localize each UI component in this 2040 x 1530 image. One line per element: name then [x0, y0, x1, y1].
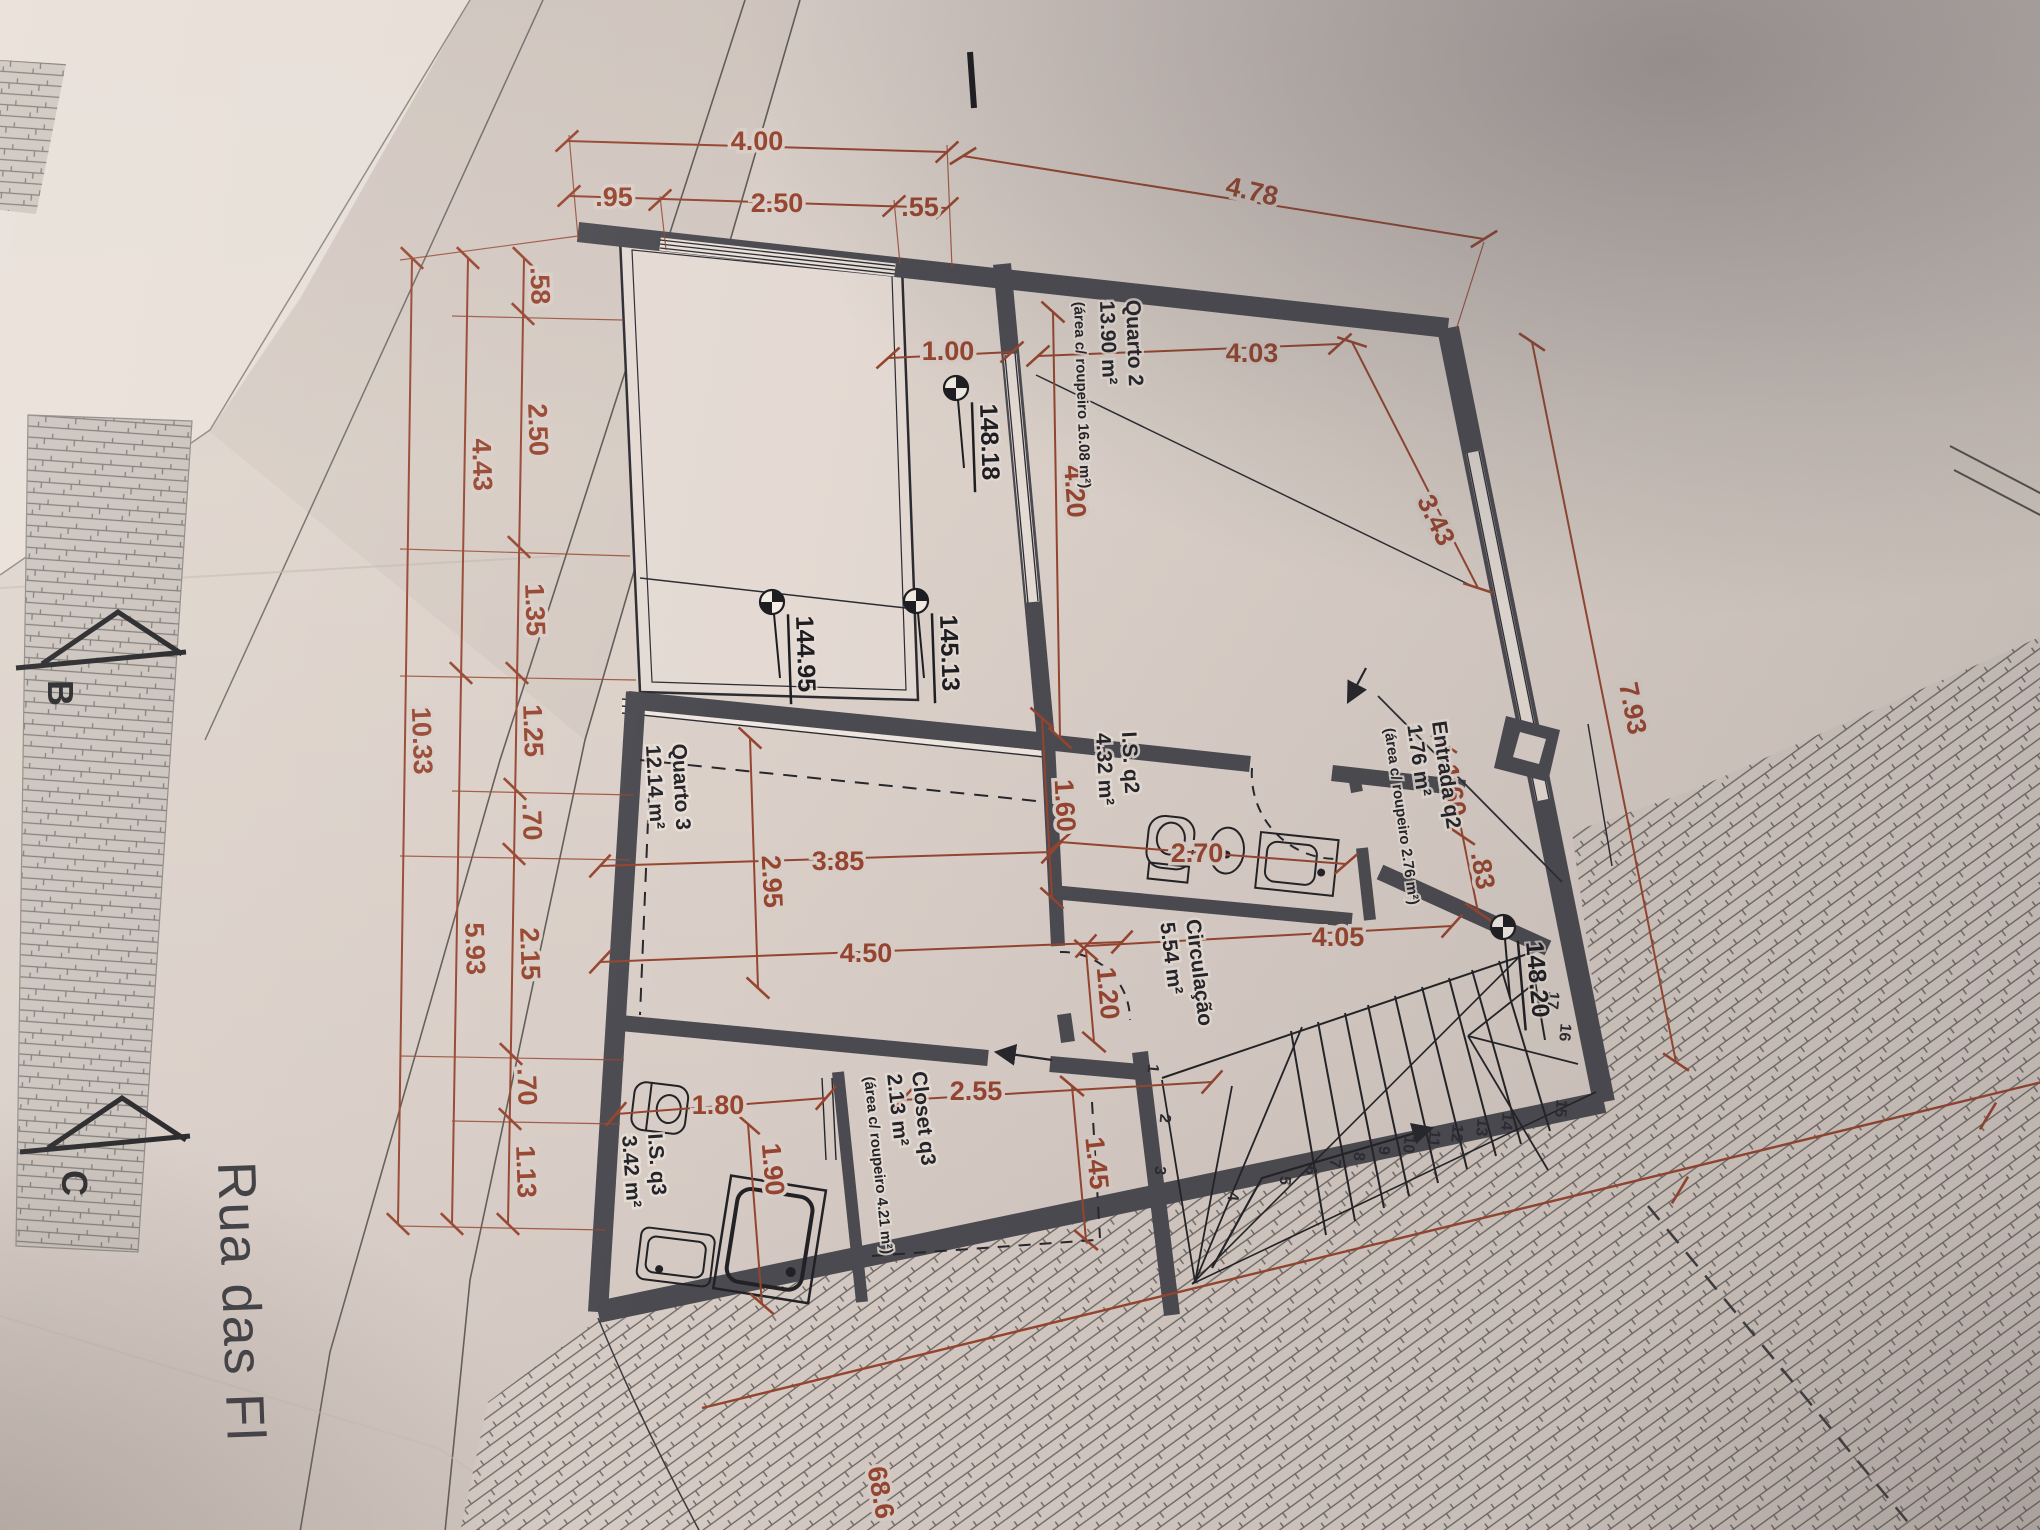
stair-number: 11	[1424, 1129, 1442, 1147]
dim-label: 1.35	[519, 583, 551, 637]
level-label: 148.18	[974, 403, 1005, 480]
room-name: Circulação	[1181, 918, 1217, 1027]
window-sill-line	[1036, 375, 1470, 585]
room-name: Closet q3	[907, 1070, 940, 1166]
dim-label: 2.50	[751, 188, 804, 218]
boundary-mark	[970, 52, 974, 108]
room-name: I.S. q3	[643, 1133, 670, 1196]
terrace	[620, 238, 1044, 757]
dim-label: 2.50	[522, 403, 554, 457]
room-area: 2.13 m²	[882, 1073, 912, 1147]
stair-number: 1	[1144, 1063, 1162, 1073]
room-area: 5.54 m²	[1155, 921, 1187, 996]
dim-label: 2.95	[756, 854, 789, 908]
road-edge-marks	[1950, 446, 2040, 518]
dim-label: 4.00	[731, 126, 784, 156]
room-area: 4.32 m²	[1091, 732, 1118, 805]
dim-label: 1.13	[510, 1145, 542, 1199]
room-note: (área c/ roupeiro 16.08 m²)	[1070, 301, 1094, 488]
door-arc-quarto2	[1252, 768, 1336, 859]
room-name: Quarto 3	[667, 743, 694, 830]
dim-label: .83	[1465, 849, 1501, 891]
level-label: 145.13	[934, 614, 965, 691]
sink-icon	[636, 1227, 716, 1288]
room-area: 13.90 m²	[1095, 300, 1121, 385]
dim-label: .95	[595, 182, 633, 212]
dim-label: 3.85	[812, 846, 865, 876]
level-label: 148.20	[1520, 940, 1555, 1019]
section-label: C	[54, 1170, 95, 1196]
stair-number: 16	[1555, 1023, 1573, 1042]
dim-label: 4.05	[1312, 922, 1365, 952]
dim-label: 1.60	[1049, 778, 1082, 832]
dim-label: 1.80	[692, 1090, 745, 1120]
room-area: 3.42 m²	[617, 1135, 645, 1209]
floor-plan-photo: 1 2 3 4 5 6 7 8 9 10 11 12 13 14 15 16 1…	[0, 0, 2040, 1530]
dim-label: 4.43	[466, 438, 498, 492]
entry-door-arrow	[1348, 668, 1366, 702]
stair-number: 14	[1497, 1112, 1515, 1131]
dim-label: 7.93	[1613, 680, 1652, 737]
dim-label: .70	[516, 802, 547, 841]
room-area: 12.14 m²	[641, 744, 668, 829]
stair-number: 4	[1224, 1191, 1242, 1201]
site-context	[0, 0, 2040, 1530]
dim-label: 2.70	[1171, 838, 1224, 868]
stair-number: 7	[1326, 1158, 1344, 1168]
wall-left	[598, 692, 636, 1312]
dim-label: 1.90	[756, 1142, 790, 1197]
dim-label: 4.50	[840, 938, 893, 968]
room-name: Quarto 2	[1121, 299, 1147, 386]
stair-number: 6	[1302, 1165, 1320, 1175]
dim-label: 4.78	[1223, 171, 1281, 212]
dim-label: .55	[901, 192, 939, 222]
dim-label: 10.33	[406, 706, 438, 775]
dim-label: 1.25	[517, 704, 549, 758]
stair-number: 5	[1276, 1175, 1294, 1185]
stair-number: 9	[1375, 1145, 1393, 1155]
stair-number: 13	[1472, 1118, 1490, 1137]
stair-number: 3	[1151, 1165, 1169, 1175]
dim-label: .70	[511, 1067, 542, 1106]
street-name-label: Rua das Fl	[206, 1160, 276, 1443]
stair-number: 2	[1156, 1113, 1174, 1123]
room-name: I.S. q2	[1117, 731, 1143, 794]
stair-number: 10	[1399, 1135, 1417, 1154]
stair-number: 15	[1551, 1099, 1569, 1118]
dim-label: 5.93	[459, 922, 491, 976]
stair-number: 12	[1447, 1124, 1465, 1143]
dim-label: 1.20	[1091, 966, 1125, 1021]
dim-label: 2.55	[950, 1076, 1003, 1106]
dim-label: 4.03	[1226, 338, 1279, 368]
sink-icon	[1255, 832, 1338, 896]
dim-label: 1.00	[922, 336, 975, 366]
stair-number: 8	[1350, 1151, 1368, 1161]
section-label: B	[40, 680, 81, 706]
dim-label: .58	[524, 266, 555, 305]
dim-label: 2.15	[514, 927, 546, 981]
closet-door-arrow	[996, 1052, 1052, 1060]
plan-canvas: 1 2 3 4 5 6 7 8 9 10 11 12 13 14 15 16 1…	[0, 0, 2040, 1530]
dim-label: 1.45	[1079, 1135, 1114, 1190]
level-label: 144.95	[790, 615, 821, 692]
